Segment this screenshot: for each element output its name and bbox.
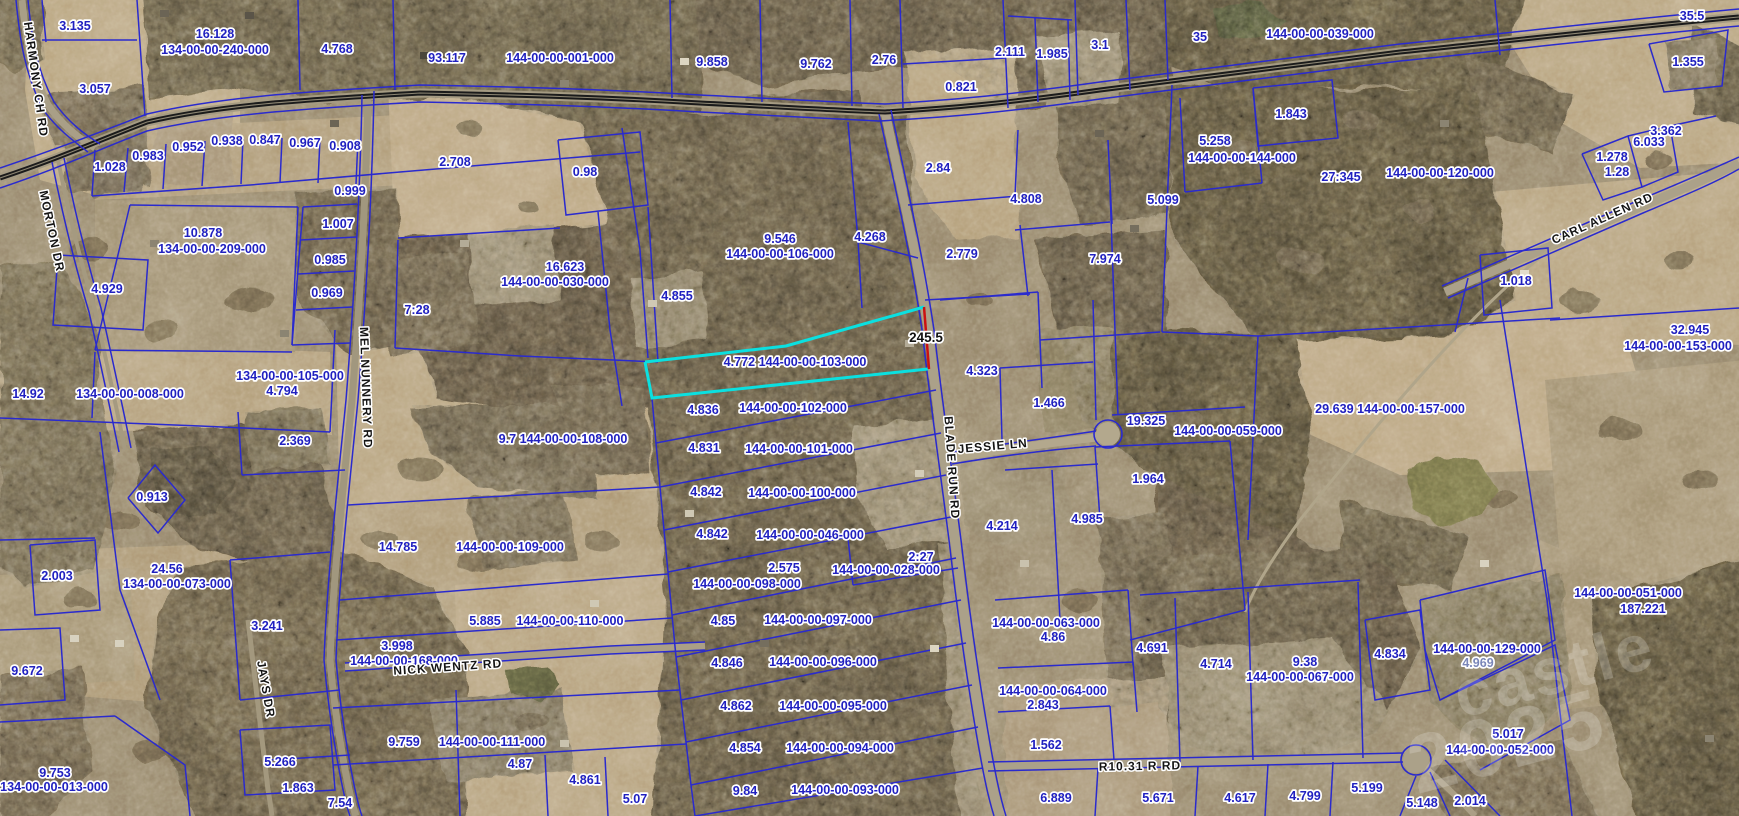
svg-text:144-00-00-095-000: 144-00-00-095-000 xyxy=(779,699,887,713)
svg-text:4.862: 4.862 xyxy=(720,699,752,713)
svg-text:144-00-00-064-000: 144-00-00-064-000 xyxy=(999,684,1107,698)
svg-text:4.772 144-00-00-103-000: 4.772 144-00-00-103-000 xyxy=(724,355,867,369)
svg-text:144-00-00-109-000: 144-00-00-109-000 xyxy=(456,540,564,554)
svg-text:32.945: 32.945 xyxy=(1671,323,1710,337)
svg-text:4.854: 4.854 xyxy=(729,741,761,755)
svg-text:3.241: 3.241 xyxy=(251,619,283,633)
svg-text:2.779: 2.779 xyxy=(946,247,978,261)
svg-text:4.617: 4.617 xyxy=(1224,791,1256,805)
svg-text:0.821: 0.821 xyxy=(945,80,977,94)
svg-text:1.028: 1.028 xyxy=(94,160,126,174)
svg-text:4.794: 4.794 xyxy=(266,384,298,398)
svg-text:2.843: 2.843 xyxy=(1027,698,1059,712)
svg-text:0.952: 0.952 xyxy=(172,140,204,154)
svg-text:144-00-00-106-000: 144-00-00-106-000 xyxy=(726,247,834,261)
svg-text:10.878: 10.878 xyxy=(184,226,223,240)
svg-text:134-00-00-240-000: 134-00-00-240-000 xyxy=(161,43,269,57)
svg-text:134-00-00-008-000: 134-00-00-008-000 xyxy=(76,387,184,401)
svg-text:29.639 144-00-00-157-000: 29.639 144-00-00-157-000 xyxy=(1315,402,1465,416)
svg-text:144-00-00-063-000: 144-00-00-063-000 xyxy=(992,616,1100,630)
svg-text:3.998: 3.998 xyxy=(381,639,413,653)
svg-text:3.135: 3.135 xyxy=(59,19,91,33)
svg-text:245.5: 245.5 xyxy=(909,330,943,345)
svg-text:R10.31 R RD: R10.31 R RD xyxy=(1099,758,1182,773)
svg-text:1.964: 1.964 xyxy=(1132,472,1164,486)
svg-text:4.799: 4.799 xyxy=(1289,789,1321,803)
svg-text:5.099: 5.099 xyxy=(1147,193,1179,207)
svg-text:4.861: 4.861 xyxy=(569,773,601,787)
svg-text:2.84: 2.84 xyxy=(926,161,951,175)
svg-text:9.84: 9.84 xyxy=(733,784,758,798)
svg-text:0.847: 0.847 xyxy=(249,133,281,147)
svg-text:2.708: 2.708 xyxy=(439,155,471,169)
svg-text:144-00-00-067-000: 144-00-00-067-000 xyxy=(1246,670,1354,684)
svg-text:144-00-00-144-000: 144-00-00-144-000 xyxy=(1188,151,1296,165)
svg-text:4.85: 4.85 xyxy=(711,614,736,628)
svg-text:7.974: 7.974 xyxy=(1089,252,1121,266)
svg-text:4.842: 4.842 xyxy=(696,527,728,541)
svg-text:16.623: 16.623 xyxy=(546,260,585,274)
svg-text:144-00-00-100-000: 144-00-00-100-000 xyxy=(748,486,856,500)
svg-text:1.007: 1.007 xyxy=(322,217,354,231)
svg-text:35.5: 35.5 xyxy=(1680,9,1705,23)
svg-text:4.855: 4.855 xyxy=(661,289,693,303)
svg-text:9.753: 9.753 xyxy=(39,766,71,780)
svg-text:4.842: 4.842 xyxy=(690,485,722,499)
svg-text:4.214: 4.214 xyxy=(986,519,1018,533)
svg-text:3.1: 3.1 xyxy=(1091,38,1109,52)
svg-text:144-00-00-059-000: 144-00-00-059-000 xyxy=(1174,424,1282,438)
svg-text:4.86: 4.86 xyxy=(1041,630,1066,644)
svg-text:4.323: 4.323 xyxy=(966,364,998,378)
svg-text:4.831: 4.831 xyxy=(688,441,720,455)
svg-text:93.117: 93.117 xyxy=(428,51,466,65)
svg-text:9.7 144-00-00-108-000: 9.7 144-00-00-108-000 xyxy=(499,432,628,446)
svg-text:4.87: 4.87 xyxy=(508,757,533,771)
svg-text:144-00-00-098-000: 144-00-00-098-000 xyxy=(693,577,801,591)
svg-text:2.111: 2.111 xyxy=(995,45,1025,59)
svg-text:9.672: 9.672 xyxy=(11,664,43,678)
svg-text:5.671: 5.671 xyxy=(1142,791,1174,805)
svg-text:0.908: 0.908 xyxy=(329,139,361,153)
svg-text:2.369: 2.369 xyxy=(279,434,311,448)
svg-text:4.691: 4.691 xyxy=(1136,641,1168,655)
svg-text:144-00-00-153-000: 144-00-00-153-000 xyxy=(1624,339,1732,353)
svg-text:9.858: 9.858 xyxy=(696,55,728,69)
svg-text:27:345: 27:345 xyxy=(1321,170,1360,184)
svg-text:4.808: 4.808 xyxy=(1010,192,1042,206)
svg-text:14.92: 14.92 xyxy=(12,387,44,401)
svg-text:0.999: 0.999 xyxy=(334,184,366,198)
svg-text:0.969: 0.969 xyxy=(311,286,343,300)
svg-text:4.985: 4.985 xyxy=(1071,512,1103,526)
svg-text:4.714: 4.714 xyxy=(1200,657,1232,671)
svg-text:144-00-00-093-000: 144-00-00-093-000 xyxy=(791,783,899,797)
svg-text:144-00-00-110-000: 144-00-00-110-000 xyxy=(516,614,623,628)
svg-text:144-00-00-001-000: 144-00-00-001-000 xyxy=(506,51,614,65)
svg-text:9.759: 9.759 xyxy=(388,735,420,749)
svg-text:5.07: 5.07 xyxy=(623,792,648,806)
svg-text:6.889: 6.889 xyxy=(1040,791,1072,805)
svg-text:16.128: 16.128 xyxy=(196,27,235,41)
svg-text:4.846: 4.846 xyxy=(711,656,743,670)
svg-text:1.355: 1.355 xyxy=(1672,55,1704,69)
svg-text:144-00-00-097-000: 144-00-00-097-000 xyxy=(764,613,872,627)
svg-text:1.28: 1.28 xyxy=(1605,165,1630,179)
svg-text:14.785: 14.785 xyxy=(379,540,418,554)
svg-text:7.54: 7.54 xyxy=(328,796,353,810)
svg-text:1.985: 1.985 xyxy=(1036,47,1068,61)
svg-text:5.266: 5.266 xyxy=(264,755,296,769)
svg-text:1.843: 1.843 xyxy=(1275,107,1307,121)
svg-text:144-00-00-051-000: 144-00-00-051-000 xyxy=(1574,586,1682,600)
svg-text:24.56: 24.56 xyxy=(151,562,183,576)
svg-text:0.967: 0.967 xyxy=(289,136,321,150)
svg-text:144-00-00-094-000: 144-00-00-094-000 xyxy=(786,741,894,755)
svg-text:1.863: 1.863 xyxy=(282,781,314,795)
svg-text:144-00-00-030-000: 144-00-00-030-000 xyxy=(501,275,609,289)
svg-text:4.268: 4.268 xyxy=(854,230,886,244)
svg-text:0.98: 0.98 xyxy=(573,165,598,179)
svg-text:1.018: 1.018 xyxy=(1500,274,1532,288)
svg-text:134-00-00-209-000: 134-00-00-209-000 xyxy=(158,242,266,256)
svg-text:0.938: 0.938 xyxy=(211,134,243,148)
svg-text:134-00-00-073-000: 134-00-00-073-000 xyxy=(123,577,231,591)
svg-text:2:27: 2:27 xyxy=(908,550,933,564)
svg-text:6.033: 6.033 xyxy=(1633,135,1665,149)
svg-text:5.885: 5.885 xyxy=(469,614,501,628)
svg-text:5.258: 5.258 xyxy=(1199,134,1231,148)
svg-text:1.466: 1.466 xyxy=(1033,396,1065,410)
svg-text:5.199: 5.199 xyxy=(1351,781,1383,795)
svg-text:19.325: 19.325 xyxy=(1127,414,1166,428)
svg-text:4.929: 4.929 xyxy=(91,282,123,296)
svg-text:144-00-00-120-000: 144-00-00-120-000 xyxy=(1386,166,1494,180)
svg-text:144-00-00-101-000: 144-00-00-101-000 xyxy=(745,442,853,456)
svg-text:134-00-00-105-000: 134-00-00-105-000 xyxy=(236,369,344,383)
svg-text:144-00-00-096-000: 144-00-00-096-000 xyxy=(769,655,877,669)
svg-text:1.562: 1.562 xyxy=(1030,738,1062,752)
svg-text:0.913: 0.913 xyxy=(136,490,168,504)
svg-text:4.768: 4.768 xyxy=(321,42,353,56)
svg-text:2.003: 2.003 xyxy=(41,569,73,583)
svg-text:7:28: 7:28 xyxy=(404,303,429,317)
svg-text:0.983: 0.983 xyxy=(132,149,164,163)
svg-text:144-00-00-046-000: 144-00-00-046-000 xyxy=(756,528,864,542)
svg-text:144-00-00-028-000: 144-00-00-028-000 xyxy=(832,563,940,577)
svg-text:0.985: 0.985 xyxy=(314,253,346,267)
svg-text:144-00-00-111-000: 144-00-00-111-000 xyxy=(439,735,545,749)
svg-text:1.278: 1.278 xyxy=(1596,150,1628,164)
svg-text:9.762: 9.762 xyxy=(800,57,832,71)
svg-text:4.836: 4.836 xyxy=(687,403,719,417)
svg-text:4.834: 4.834 xyxy=(1374,647,1406,661)
svg-text:2.575: 2.575 xyxy=(768,561,800,575)
svg-text:35: 35 xyxy=(1193,30,1207,44)
svg-text:144-00-00-039-000: 144-00-00-039-000 xyxy=(1266,27,1374,41)
svg-text:144-00-00-102-000: 144-00-00-102-000 xyxy=(739,401,847,415)
svg-text:9.38: 9.38 xyxy=(1293,655,1318,669)
svg-text:134-00-00-013-000: 134-00-00-013-000 xyxy=(0,780,108,794)
svg-text:9.546: 9.546 xyxy=(764,232,796,246)
svg-text:2.76: 2.76 xyxy=(872,53,897,67)
svg-text:3.057: 3.057 xyxy=(79,82,111,96)
